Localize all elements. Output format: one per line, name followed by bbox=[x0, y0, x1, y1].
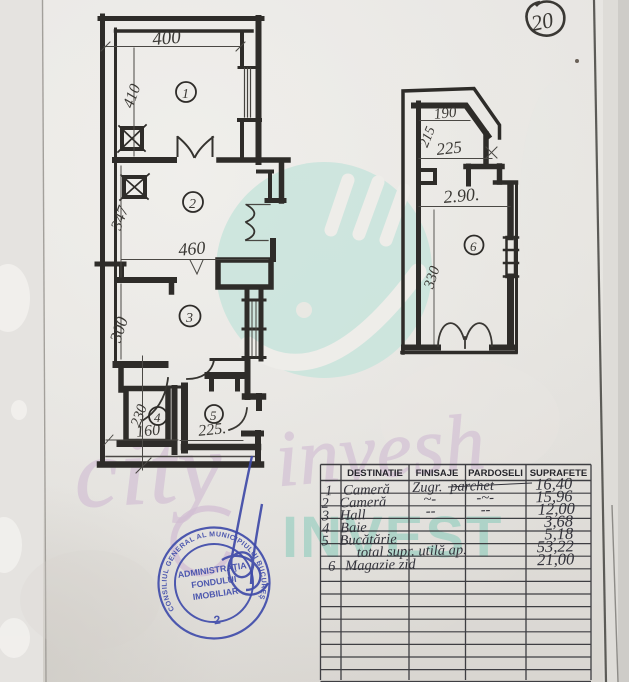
svg-text:5: 5 bbox=[210, 408, 217, 423]
svg-text:1: 1 bbox=[182, 87, 189, 102]
svg-text:460: 460 bbox=[178, 237, 207, 259]
svg-text:21,00: 21,00 bbox=[537, 549, 575, 569]
svg-text:Magazie zid: Magazie zid bbox=[344, 556, 417, 574]
svg-text:6: 6 bbox=[470, 239, 477, 254]
svg-text:6: 6 bbox=[328, 558, 336, 574]
svg-text:2.90.: 2.90. bbox=[443, 184, 481, 207]
svg-text:2: 2 bbox=[189, 197, 196, 212]
svg-text:--: -- bbox=[481, 502, 491, 518]
svg-text:DESTINATIE: DESTINATIE bbox=[347, 468, 403, 479]
svg-text:4: 4 bbox=[154, 410, 161, 425]
svg-text:225: 225 bbox=[435, 137, 462, 159]
svg-text:5: 5 bbox=[321, 533, 329, 549]
svg-text:--: -- bbox=[426, 503, 436, 519]
svg-text:400: 400 bbox=[151, 27, 182, 50]
svg-text:190: 190 bbox=[433, 105, 458, 123]
svg-text:3: 3 bbox=[185, 311, 193, 326]
svg-text:FINISAJE: FINISAJE bbox=[416, 468, 459, 479]
